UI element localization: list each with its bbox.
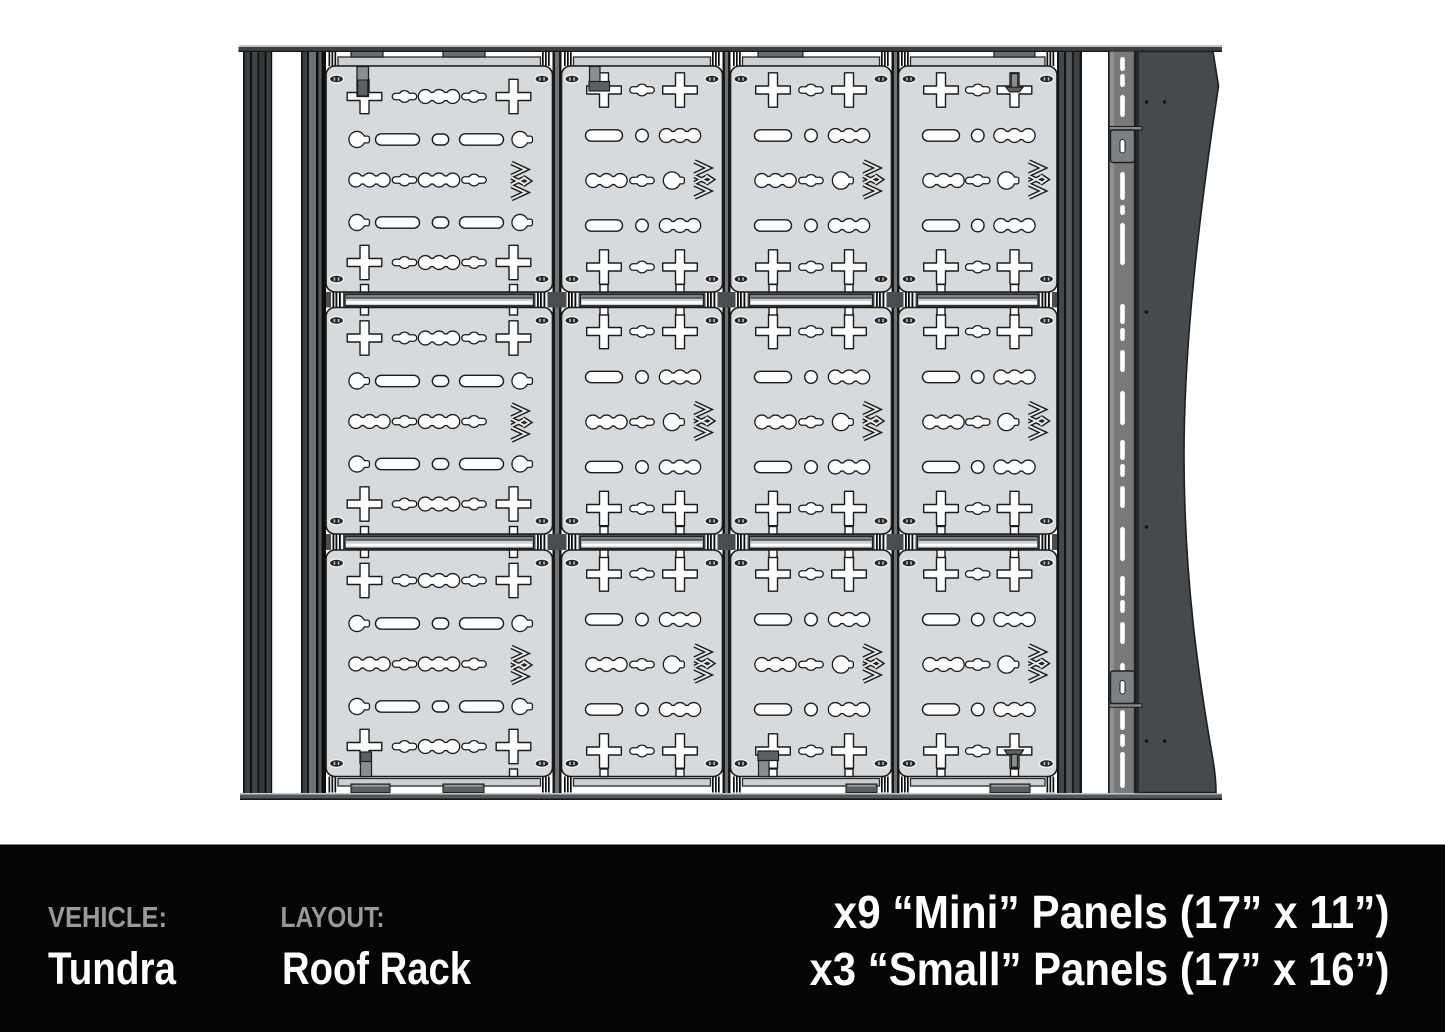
- svg-text:Roof Rack: Roof Rack: [282, 943, 472, 994]
- svg-text:x9 “Mini” Panels (17” x 11”): x9 “Mini” Panels (17” x 11”): [834, 886, 1390, 938]
- svg-text:VEHICLE:: VEHICLE:: [48, 902, 167, 934]
- svg-text:Tundra: Tundra: [48, 943, 177, 994]
- svg-text:LAYOUT:: LAYOUT:: [281, 902, 385, 934]
- svg-text:x3 “Small” Panels (17” x 16”): x3 “Small” Panels (17” x 16”): [810, 943, 1390, 995]
